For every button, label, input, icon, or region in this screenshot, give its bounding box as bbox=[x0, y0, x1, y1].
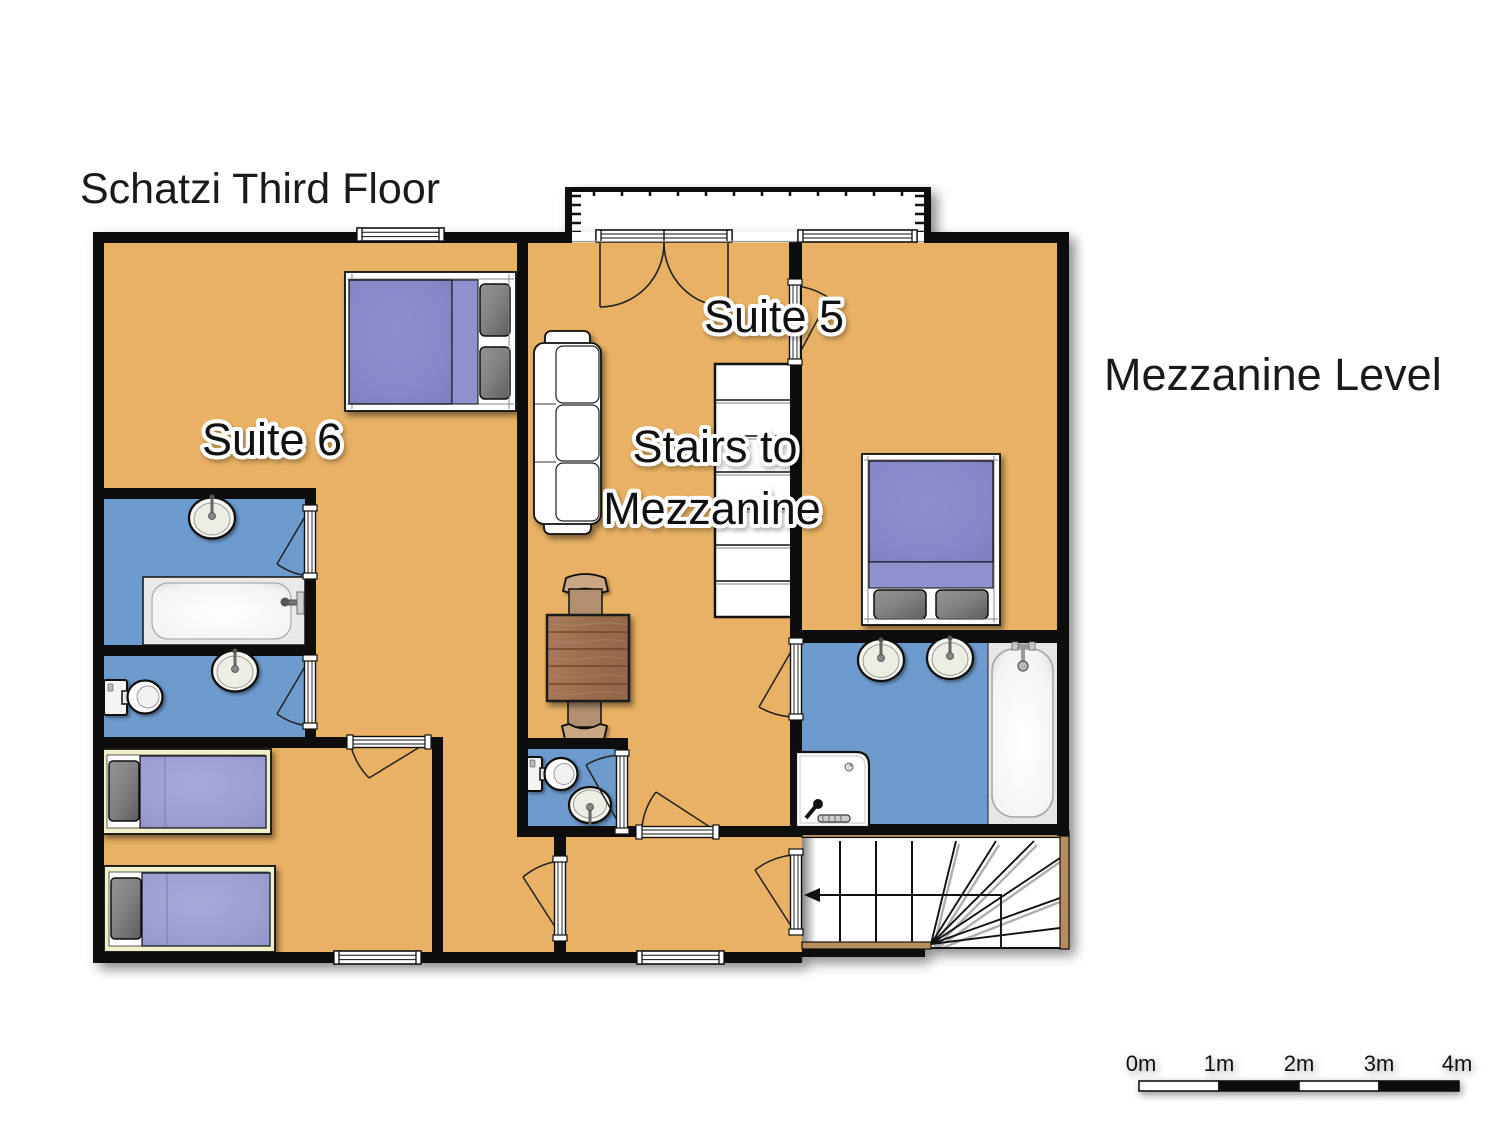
svg-text:2m: 2m bbox=[1284, 1051, 1315, 1076]
svg-text:Suite 5: Suite 5 bbox=[704, 291, 844, 342]
svg-text:Stairs to: Stairs to bbox=[632, 421, 797, 472]
svg-text:Schatzi Third Floor: Schatzi Third Floor bbox=[80, 165, 440, 213]
svg-text:1m: 1m bbox=[1204, 1051, 1235, 1076]
svg-text:0m: 0m bbox=[1126, 1051, 1157, 1076]
svg-text:Suite 6: Suite 6 bbox=[202, 414, 342, 465]
svg-text:4m: 4m bbox=[1442, 1051, 1473, 1076]
svg-text:Mezzanine Level: Mezzanine Level bbox=[1104, 349, 1442, 400]
svg-text:3m: 3m bbox=[1364, 1051, 1395, 1076]
svg-text:Mezzanine: Mezzanine bbox=[603, 483, 821, 534]
